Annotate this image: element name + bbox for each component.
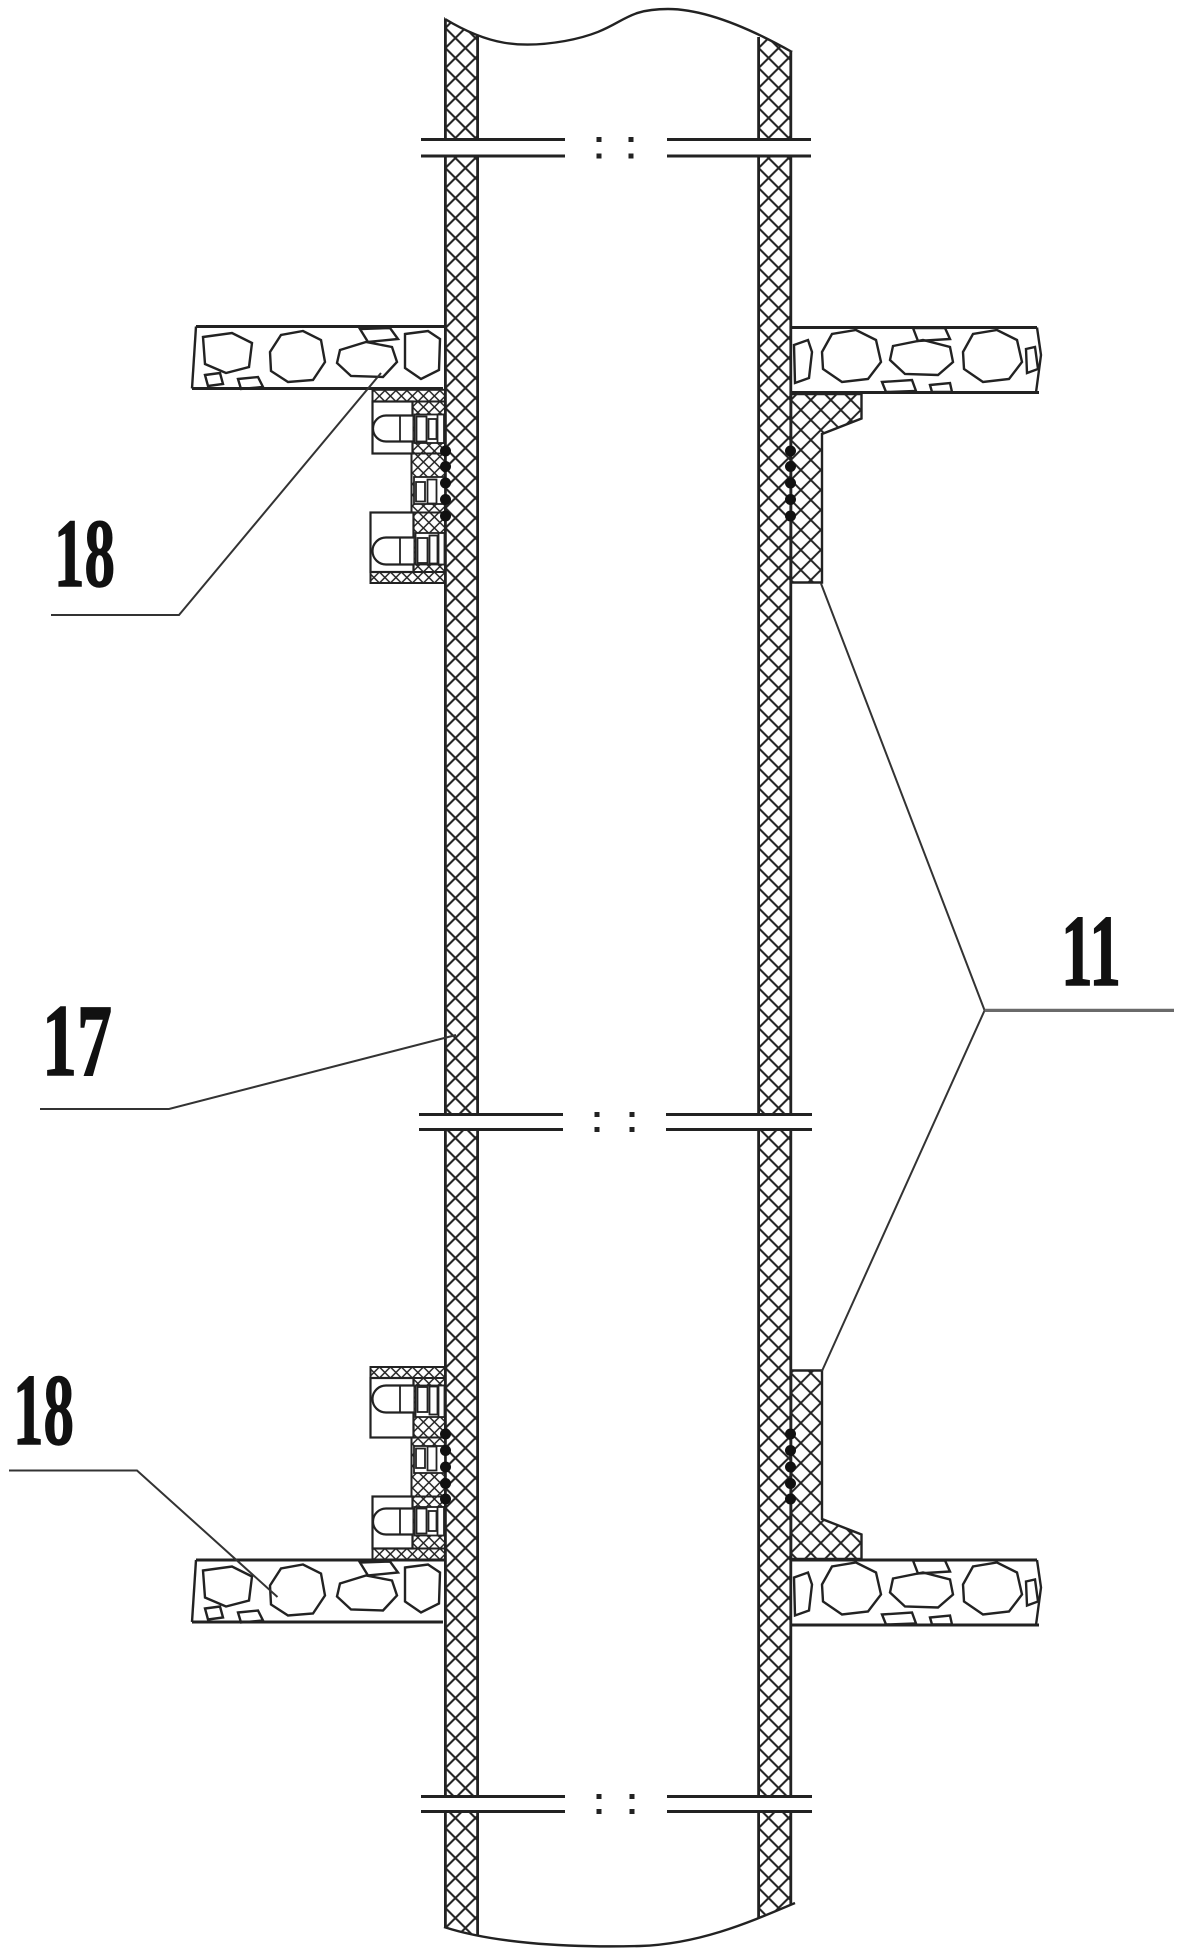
svg-text:18: 18 [13, 1354, 74, 1467]
svg-text:17: 17 [42, 984, 112, 1098]
svg-text:18: 18 [54, 500, 115, 607]
svg-text:11: 11 [1061, 895, 1121, 1008]
